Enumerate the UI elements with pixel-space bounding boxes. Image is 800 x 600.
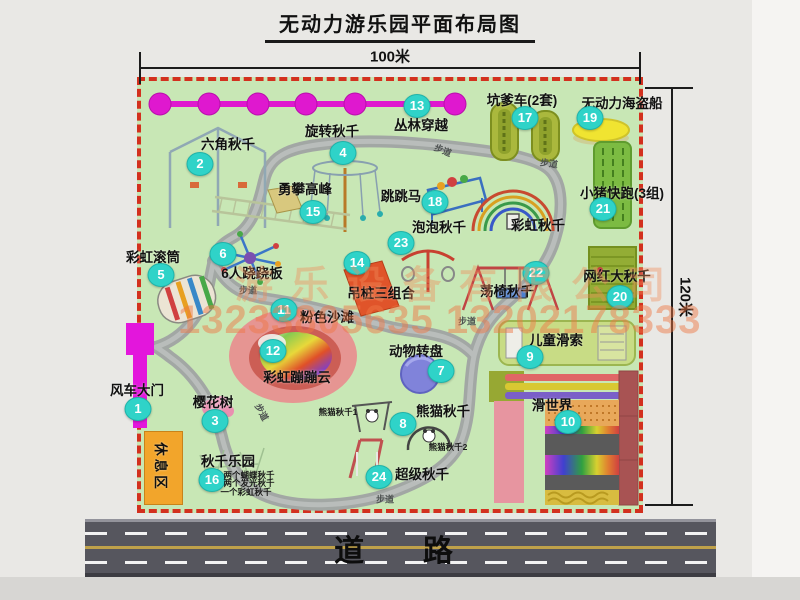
attraction-14-label: 吊桩三组合 bbox=[347, 282, 415, 302]
attraction-6-label: 6人跷跷板 bbox=[221, 262, 283, 282]
page-title: 无动力游乐园平面布局图 bbox=[265, 8, 535, 43]
attraction-16-label: 秋千乐园 bbox=[201, 450, 255, 470]
width-dimension-tick-right bbox=[639, 52, 641, 84]
attraction-22-label: 荡椅秋千 bbox=[480, 280, 534, 300]
rest-area-label: 休息区 bbox=[152, 442, 172, 492]
attraction-3-label: 樱花树 bbox=[193, 391, 234, 411]
attraction-24-badge: 24 bbox=[366, 465, 393, 489]
height-dimension-line bbox=[671, 88, 673, 506]
height-dimension-tick-bottom bbox=[645, 504, 693, 506]
attraction-7-label: 动物转盘 bbox=[389, 340, 443, 360]
attraction-12-badge: 12 bbox=[260, 339, 287, 363]
attraction-18-label: 跳跳马 bbox=[381, 185, 422, 205]
attraction-14-badge: 14 bbox=[344, 251, 371, 275]
attraction-21-label: 小猪快跑(3组) bbox=[580, 182, 664, 202]
attraction-22-badge: 22 bbox=[523, 261, 550, 285]
attraction-20-badge: 20 bbox=[607, 285, 634, 309]
road: 道 路 bbox=[85, 519, 716, 577]
attraction-21-badge: 21 bbox=[590, 197, 617, 221]
attraction-1-label: 风车大门 bbox=[110, 379, 164, 399]
attraction-12-label: 彩虹蹦蹦云 bbox=[263, 366, 331, 386]
width-dimension-tick-left bbox=[139, 52, 141, 84]
walkway-label: 步道 bbox=[239, 284, 257, 297]
attraction-4-badge: 4 bbox=[330, 141, 357, 165]
width-dimension-line bbox=[140, 67, 640, 69]
attraction-19-badge: 19 bbox=[577, 106, 604, 130]
background-right-strip bbox=[752, 0, 800, 600]
attraction-18-badge: 18 bbox=[422, 190, 449, 214]
swing-park-note-3: 一个彩虹秋千 bbox=[220, 486, 271, 498]
attraction-5-badge: 5 bbox=[148, 263, 175, 287]
attraction-15-badge: 15 bbox=[300, 200, 327, 224]
walkway-label: 步道 bbox=[376, 493, 394, 506]
attraction-17-badge: 17 bbox=[512, 106, 539, 130]
park-layout-plan: 无动力游乐园平面布局图 100米 120米 bbox=[0, 0, 800, 600]
attraction-8-label: 熊猫秋千 bbox=[416, 400, 470, 420]
attraction-13-badge: 13 bbox=[404, 94, 431, 118]
panda-swing-2-label: 熊猫秋千2 bbox=[429, 441, 468, 453]
attraction-3-badge: 3 bbox=[202, 409, 229, 433]
attraction-10-badge: 10 bbox=[555, 410, 582, 434]
attraction-23-label: 泡泡秋千 bbox=[412, 216, 466, 236]
attraction-1-badge: 1 bbox=[125, 397, 152, 421]
attraction-11-label: 粉色沙滩 bbox=[300, 306, 354, 326]
rainbow-swing-label: 彩虹秋千 bbox=[511, 214, 565, 234]
walkway-label: 步道 bbox=[539, 155, 559, 170]
attraction-23-badge: 23 bbox=[388, 231, 415, 255]
width-dimension-label: 100米 bbox=[370, 46, 410, 67]
attraction-4-label: 旋转秋千 bbox=[305, 120, 359, 140]
attraction-15-label: 勇攀高峰 bbox=[278, 178, 332, 198]
attraction-6-badge: 6 bbox=[210, 242, 237, 266]
height-dimension-tick-top bbox=[645, 87, 693, 89]
background-below-road bbox=[0, 577, 800, 600]
walkway-label: 步道 bbox=[458, 315, 476, 328]
attraction-11-badge: 11 bbox=[271, 298, 298, 322]
attraction-24-label: 超级秋千 bbox=[395, 463, 449, 483]
attraction-8-badge: 8 bbox=[390, 412, 417, 436]
attraction-20-label: 网红大秋千 bbox=[583, 265, 651, 285]
road-label: 道 路 bbox=[85, 519, 716, 577]
height-dimension-label: 120米 bbox=[676, 277, 697, 317]
attraction-7-badge: 7 bbox=[428, 359, 455, 383]
attraction-5-label: 彩虹滚筒 bbox=[126, 246, 180, 266]
attraction-9-badge: 9 bbox=[517, 345, 544, 369]
attraction-2-label: 六角秋千 bbox=[201, 133, 255, 153]
attraction-2-badge: 2 bbox=[187, 152, 214, 176]
panda-swing-1-label: 熊猫秋千1 bbox=[319, 406, 358, 418]
